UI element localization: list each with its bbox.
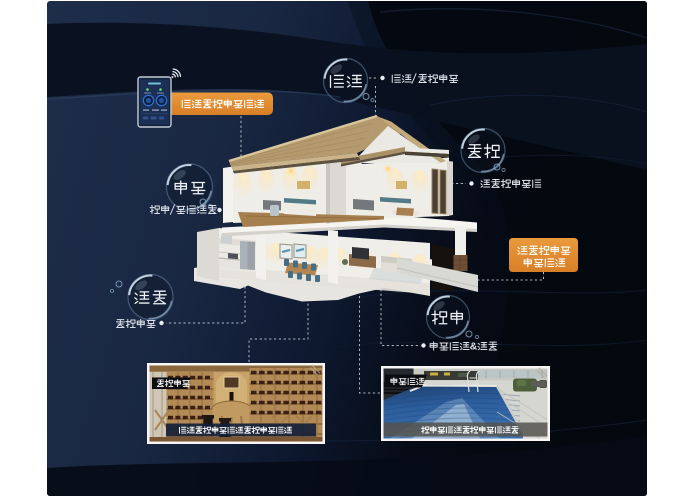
svg-text:&: & [470, 342, 478, 353]
